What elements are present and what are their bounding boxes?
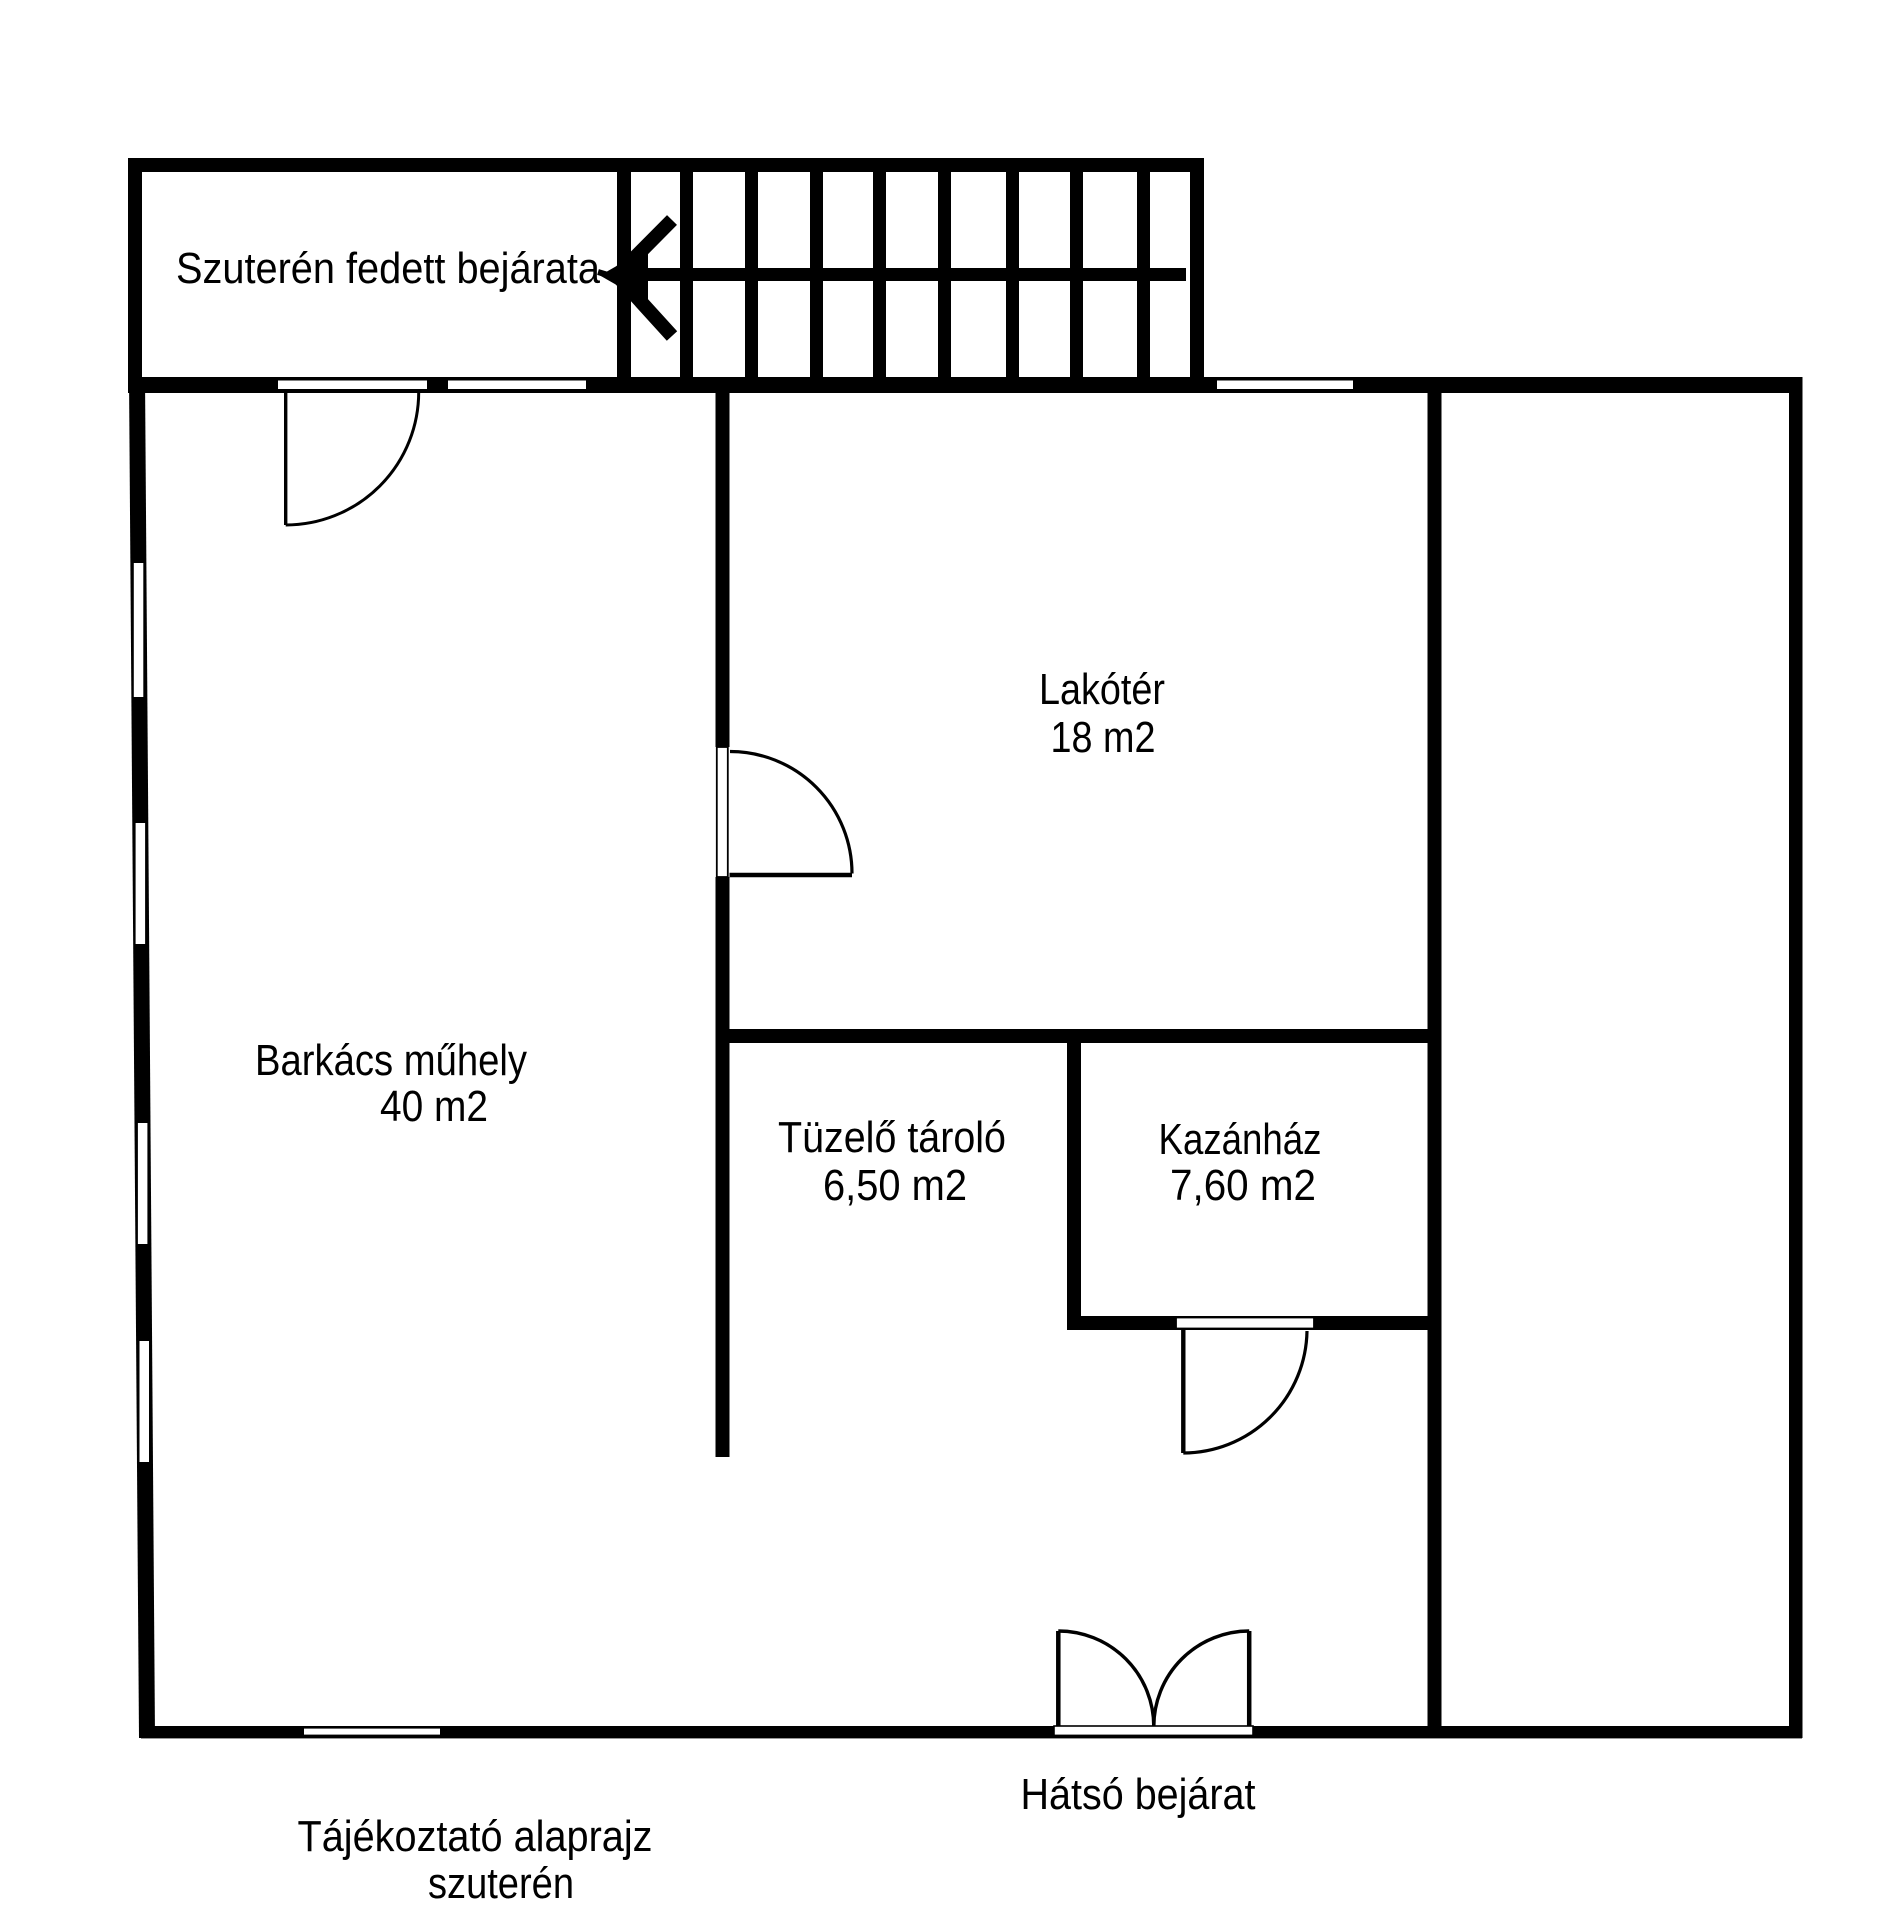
svg-text:Kazánház: Kazánház [1159, 1115, 1322, 1164]
svg-text:18 m2: 18 m2 [1051, 713, 1156, 762]
svg-text:6,50 m2: 6,50 m2 [823, 1161, 967, 1210]
svg-text:7,60 m2: 7,60 m2 [1170, 1161, 1316, 1210]
svg-text:Tájékoztató alaprajz: Tájékoztató alaprajz [298, 1812, 653, 1861]
svg-text:Szuterén fedett bejárata: Szuterén fedett bejárata [176, 244, 600, 293]
svg-text:szuterén: szuterén [428, 1859, 574, 1908]
svg-text:Hátsó bejárat: Hátsó bejárat [1021, 1770, 1256, 1819]
svg-text:Tüzelő tároló: Tüzelő tároló [778, 1113, 1006, 1162]
svg-text:Barkács műhely: Barkács műhely [255, 1036, 527, 1085]
svg-text:40 m2: 40 m2 [380, 1082, 488, 1131]
svg-text:Lakótér: Lakótér [1039, 665, 1165, 714]
